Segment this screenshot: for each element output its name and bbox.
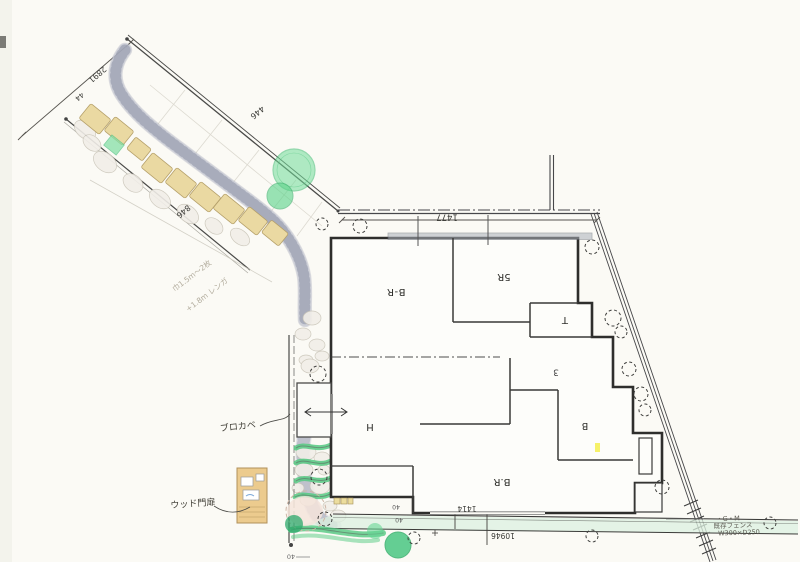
room-label-bedroom2: B.R <box>494 476 511 486</box>
room-label-hall: H <box>366 421 374 431</box>
room-label-toilet: T <box>562 314 568 324</box>
plan-canvas <box>0 0 800 562</box>
room-label-bath: B <box>582 420 589 430</box>
dim-south-total: 10946 <box>491 531 515 539</box>
plan-sheet: B-R 5R T 3 H B.R B 1477 2891 44 446 846 … <box>0 0 800 562</box>
gate-sketch <box>237 468 267 523</box>
dim-corner-a: 40 <box>392 503 400 509</box>
dim-south-part: 1414 <box>457 504 476 512</box>
dim-corner-b: 40 <box>395 516 403 522</box>
dim-south-left: 40 <box>287 553 295 560</box>
note-corner-3: W300×D250 <box>718 529 760 537</box>
room-label-storage: 5R <box>497 271 510 281</box>
room-label-stair: 3 <box>553 367 559 376</box>
brick-edge <box>334 498 353 504</box>
highlight-mark <box>595 443 600 452</box>
dim-house-front: 1477 <box>436 212 458 221</box>
room-label-bedroom1: B-R <box>387 286 406 296</box>
